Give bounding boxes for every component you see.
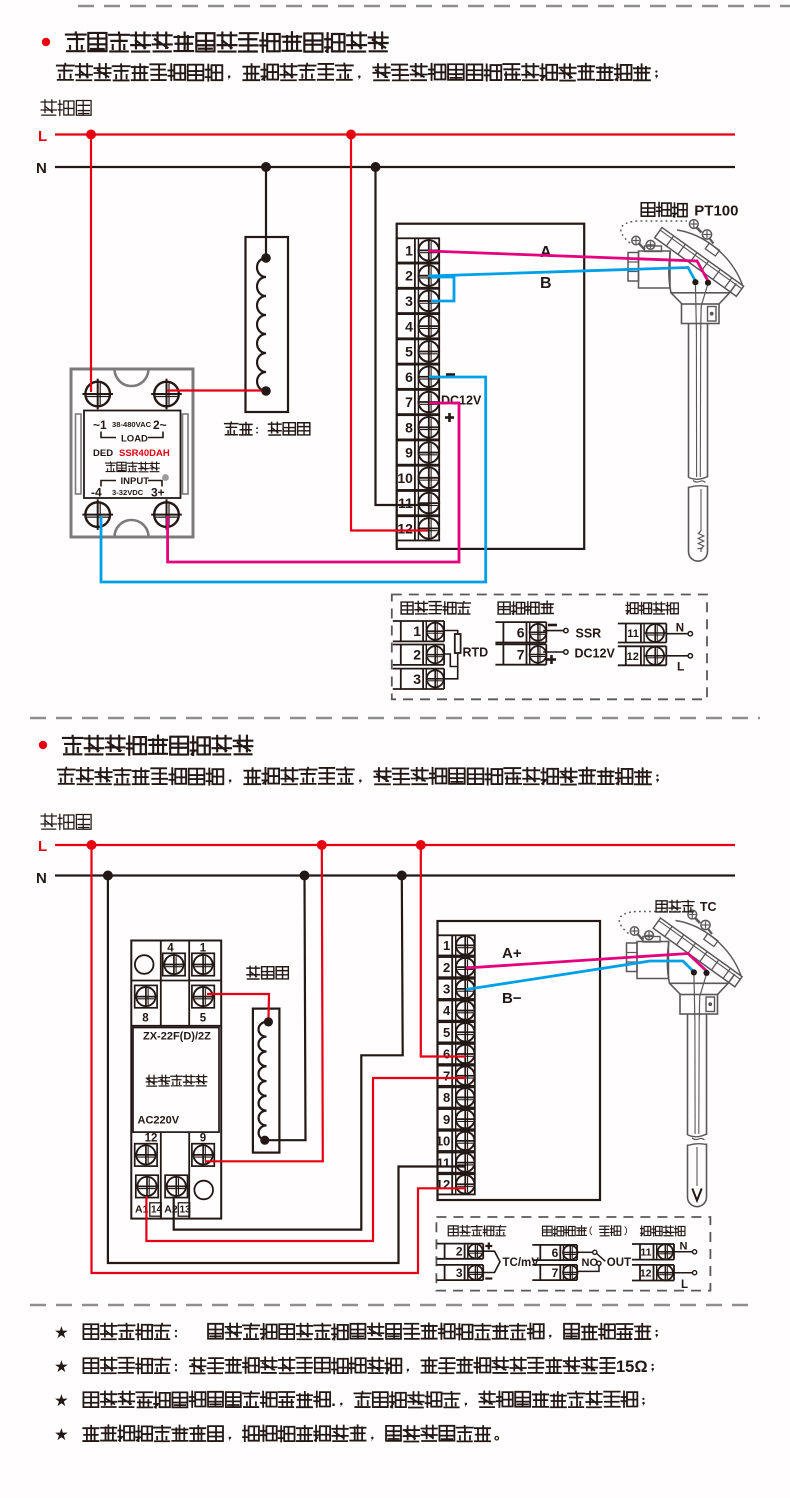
svg-text:DC12V: DC12V bbox=[441, 394, 482, 408]
svg-text:6: 6 bbox=[405, 369, 413, 385]
svg-text:PT100: PT100 bbox=[694, 203, 738, 220]
svg-text:9: 9 bbox=[405, 445, 413, 461]
svg-text:14: 14 bbox=[151, 1205, 163, 1216]
svg-text:SSR40DAH: SSR40DAH bbox=[119, 448, 170, 459]
svg-text:N: N bbox=[36, 160, 47, 177]
svg-text:SSR: SSR bbox=[576, 627, 602, 641]
svg-text:AC220V: AC220V bbox=[138, 1115, 180, 1127]
svg-text:5: 5 bbox=[405, 344, 413, 360]
svg-text:11: 11 bbox=[640, 1247, 651, 1259]
svg-text:★: ★ bbox=[54, 1426, 69, 1444]
svg-text:1: 1 bbox=[413, 623, 421, 639]
svg-text:OUT: OUT bbox=[607, 1257, 631, 1269]
svg-text:A: A bbox=[540, 244, 552, 261]
svg-text:L: L bbox=[38, 128, 47, 145]
svg-text:11: 11 bbox=[398, 495, 413, 511]
svg-text:L: L bbox=[677, 660, 684, 674]
svg-text:TC/mV: TC/mV bbox=[503, 1257, 540, 1269]
svg-text:INPUT: INPUT bbox=[121, 476, 150, 487]
svg-text:7: 7 bbox=[552, 1266, 559, 1280]
svg-text:2: 2 bbox=[405, 268, 413, 284]
svg-text:12: 12 bbox=[640, 1267, 652, 1279]
svg-text:8: 8 bbox=[443, 1090, 450, 1105]
svg-text:15Ω: 15Ω bbox=[616, 1358, 648, 1376]
svg-text:B: B bbox=[540, 275, 552, 292]
svg-text:9: 9 bbox=[443, 1112, 450, 1127]
svg-text:A2: A2 bbox=[164, 1204, 178, 1216]
svg-text:6: 6 bbox=[443, 1047, 450, 1062]
svg-text:3: 3 bbox=[405, 293, 413, 309]
svg-text:★: ★ bbox=[54, 1358, 69, 1376]
svg-text:6: 6 bbox=[517, 624, 525, 640]
svg-text:1: 1 bbox=[443, 938, 450, 953]
svg-text:12: 12 bbox=[436, 1177, 450, 1192]
svg-text:10: 10 bbox=[436, 1134, 450, 1149]
svg-text:L: L bbox=[38, 838, 47, 855]
svg-text:2~: 2~ bbox=[153, 418, 167, 432]
svg-text:12: 12 bbox=[627, 651, 639, 663]
svg-text:13: 13 bbox=[180, 1205, 192, 1216]
svg-text:11: 11 bbox=[436, 1155, 450, 1170]
svg-text:★: ★ bbox=[54, 1392, 69, 1410]
svg-text:4: 4 bbox=[443, 1003, 451, 1018]
svg-text:12: 12 bbox=[145, 1133, 158, 1145]
svg-text:L: L bbox=[681, 1279, 688, 1291]
svg-text:4: 4 bbox=[405, 318, 413, 334]
svg-text:8: 8 bbox=[142, 1013, 149, 1025]
svg-text:11: 11 bbox=[627, 628, 639, 640]
svg-text:3: 3 bbox=[413, 671, 421, 687]
svg-text:DC12V: DC12V bbox=[575, 647, 616, 661]
svg-text:DED: DED bbox=[93, 448, 113, 459]
svg-text:6: 6 bbox=[552, 1246, 559, 1260]
svg-text:~1: ~1 bbox=[93, 418, 107, 432]
svg-text:7: 7 bbox=[517, 647, 525, 663]
svg-text:8: 8 bbox=[405, 419, 413, 435]
svg-text:-4: -4 bbox=[91, 486, 102, 500]
svg-text:5: 5 bbox=[443, 1025, 450, 1040]
svg-text:ZX-22F(D)/2Z: ZX-22F(D)/2Z bbox=[143, 1031, 211, 1043]
svg-text:3: 3 bbox=[443, 982, 450, 997]
svg-text:N: N bbox=[676, 623, 684, 635]
svg-text:.: . bbox=[331, 1392, 336, 1410]
svg-text:LOAD: LOAD bbox=[121, 434, 148, 445]
svg-text:9: 9 bbox=[200, 1133, 206, 1145]
svg-text:7: 7 bbox=[405, 394, 413, 410]
svg-text:N: N bbox=[36, 870, 47, 887]
svg-text:3: 3 bbox=[456, 1266, 463, 1280]
svg-text:3-32VDC: 3-32VDC bbox=[112, 488, 144, 497]
svg-text:3+: 3+ bbox=[151, 486, 165, 500]
svg-text:12: 12 bbox=[397, 520, 413, 536]
svg-text:★: ★ bbox=[54, 1324, 69, 1342]
svg-text:N: N bbox=[680, 1241, 688, 1253]
svg-text:7: 7 bbox=[443, 1068, 450, 1083]
svg-text:2: 2 bbox=[413, 647, 421, 663]
svg-text:RTD: RTD bbox=[463, 646, 489, 660]
svg-text:1: 1 bbox=[405, 242, 413, 258]
svg-text:A+: A+ bbox=[502, 945, 522, 962]
svg-text:5: 5 bbox=[200, 1013, 207, 1025]
svg-text:NO: NO bbox=[582, 1257, 599, 1269]
svg-text:38-480VAC: 38-480VAC bbox=[112, 420, 152, 429]
svg-text:B−: B− bbox=[502, 990, 522, 1007]
svg-text:2: 2 bbox=[443, 960, 450, 975]
svg-text:2: 2 bbox=[456, 1245, 463, 1259]
svg-text:TC: TC bbox=[700, 900, 717, 914]
svg-text:10: 10 bbox=[397, 470, 413, 486]
